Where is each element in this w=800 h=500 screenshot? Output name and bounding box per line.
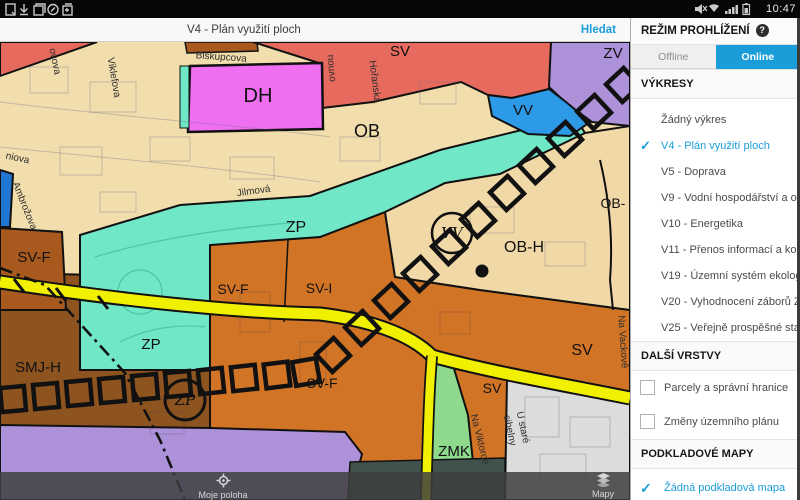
- status-icons: [694, 2, 760, 16]
- drawing-item-v19[interactable]: V19 - Územní systém ekologické...: [631, 263, 800, 289]
- section-basemaps: PODKLADOVÉ MAPY: [631, 439, 800, 469]
- zone-label: SV-I: [306, 280, 332, 296]
- zone-label: SV-F: [306, 375, 337, 391]
- basemap-item-none[interactable]: ✓ Žádná podkladová mapa: [631, 469, 800, 500]
- layer-item-plan-changes[interactable]: Změny územního plánu: [631, 405, 800, 439]
- wifi-icon: [709, 4, 719, 12]
- zone-label: SV: [571, 342, 593, 359]
- clock: 10:47: [764, 3, 796, 15]
- map-canvas[interactable]: SV ZV DH OB VV OB- ZP SV-F SV-F SV-I OB-…: [0, 42, 630, 500]
- zone-label: SV: [483, 380, 502, 396]
- drawing-item-v4[interactable]: ✓ V4 - Plán využití ploch: [631, 133, 800, 159]
- mute-icon: [695, 4, 702, 14]
- mode-tabs: Offline Online: [631, 44, 800, 69]
- help-icon[interactable]: ?: [756, 24, 769, 37]
- search-button[interactable]: Hledat: [581, 18, 616, 42]
- drawing-item-v9[interactable]: V9 - Vodní hospodářství a odpa...: [631, 185, 800, 211]
- drawing-item-label: V9 - Vodní hospodářství a odpa...: [661, 192, 800, 204]
- section-drawings: VÝKRESY: [631, 69, 800, 99]
- drawing-item-label: Žádný výkres: [661, 114, 726, 126]
- zone-label: VV: [513, 102, 533, 119]
- layers-icon: [596, 473, 611, 487]
- drawing-item-label: V19 - Územní systém ekologické...: [661, 270, 800, 282]
- layer-item-label: Změny územního plánu: [664, 405, 779, 439]
- zone-label: SMJ-H: [15, 359, 61, 376]
- zone-label: ZP: [141, 336, 160, 353]
- drawing-item-label: V10 - Energetika: [661, 218, 743, 230]
- page-title: V4 - Plán využití ploch: [187, 18, 301, 42]
- my-location-button[interactable]: Moje poloha: [195, 473, 251, 500]
- zone-label: OB-H: [504, 239, 544, 256]
- drawing-item-label: V25 - Veřejně prospěšné stavby: [661, 322, 800, 334]
- panel-title: REŽIM PROHLÍŽENÍ?: [631, 18, 800, 44]
- side-panel: REŽIM PROHLÍŽENÍ? Offline Online VÝKRESY…: [630, 18, 800, 500]
- document-icon: [5, 3, 101, 16]
- maps-button[interactable]: Mapy: [583, 473, 623, 499]
- panel-title-text: REŽIM PROHLÍŽENÍ: [641, 25, 750, 37]
- drawing-item-v20[interactable]: V20 - Vyhodnocení záborů ZPF ...: [631, 289, 800, 315]
- layer-item-parcels[interactable]: Parcely a správní hranice: [631, 371, 800, 405]
- drawing-item-v10[interactable]: V10 - Energetika: [631, 211, 800, 237]
- circled-zone-label: VV: [441, 224, 465, 242]
- gps-icon: [216, 473, 231, 488]
- zone-label: ZMK: [438, 443, 470, 460]
- signal-icon: [732, 7, 735, 14]
- checkbox[interactable]: [640, 414, 655, 429]
- drawing-item-v25[interactable]: V25 - Veřejně prospěšné stavby: [631, 315, 800, 341]
- zone-label: OB: [354, 121, 380, 141]
- notification-icons: [0, 3, 101, 16]
- drawing-item-label: V4 - Plán využití ploch: [661, 140, 770, 152]
- section-layers: DALŠÍ VRSTVY: [631, 341, 800, 371]
- checkbox[interactable]: [640, 380, 655, 395]
- zone-label: DH: [244, 85, 273, 107]
- zone-label: ZV: [603, 45, 622, 62]
- drawing-item-v11[interactable]: V11 - Přenos informací a kolekto...: [631, 237, 800, 263]
- tab-offline[interactable]: Offline: [631, 45, 716, 69]
- drawing-item-v5[interactable]: V5 - Doprava: [631, 159, 800, 185]
- map-toolbar: Moje poloha Mapy: [0, 472, 630, 500]
- drawing-item-label: V5 - Doprava: [661, 166, 726, 178]
- drawing-item-label: V11 - Přenos informací a kolekto...: [661, 244, 800, 256]
- layer-item-label: Parcely a správní hranice: [664, 371, 788, 405]
- my-location-label: Moje poloha: [195, 490, 251, 500]
- drawing-item-none[interactable]: Žádný výkres: [631, 107, 800, 133]
- zone-label: SV-F: [17, 249, 50, 266]
- status-bar: 10:47: [0, 0, 800, 18]
- checkmark-icon: ✓: [640, 133, 651, 159]
- zone-label: ZP: [286, 219, 306, 236]
- drawing-item-label: V20 - Vyhodnocení záborů ZPF ...: [661, 296, 800, 308]
- tab-online[interactable]: Online: [716, 45, 800, 69]
- checkmark-icon: ✓: [640, 469, 652, 500]
- zone-label: SV: [390, 43, 410, 60]
- circled-zone-label: ZP: [174, 391, 196, 409]
- app-bar: V4 - Plán využití ploch Hledat: [0, 18, 630, 42]
- zone-label: OB-: [601, 195, 626, 211]
- point-marker: [476, 265, 489, 278]
- maps-label: Mapy: [583, 489, 623, 499]
- zone-label: SV-F: [217, 281, 248, 297]
- basemap-item-label: Žádná podkladová mapa: [664, 482, 785, 494]
